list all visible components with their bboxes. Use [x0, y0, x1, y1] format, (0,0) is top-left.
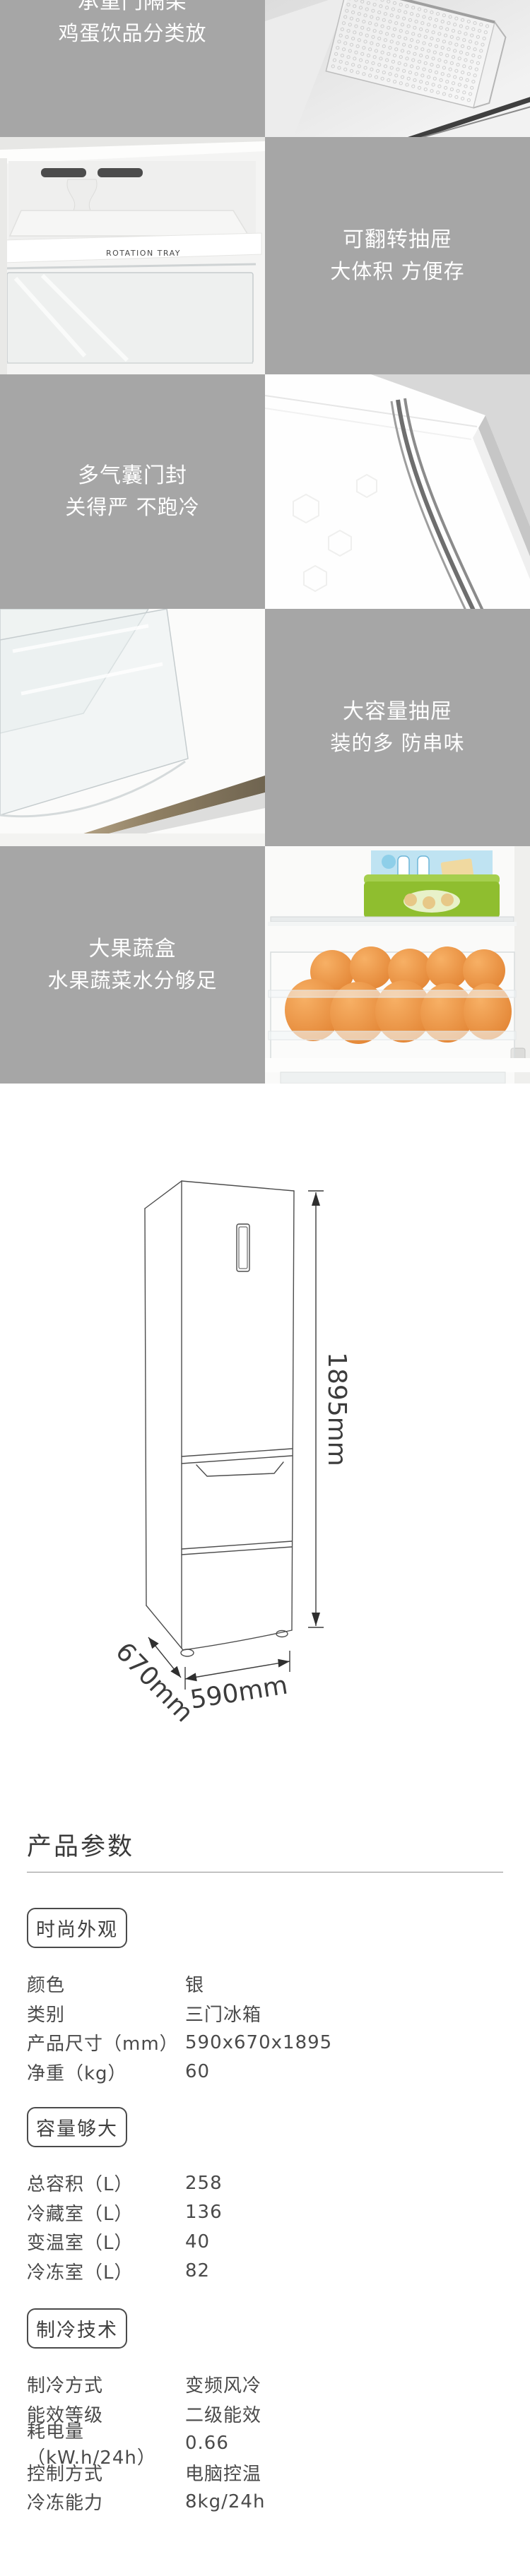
feature-text-big-drawer: 大容量抽屉 装的多 防串味 — [265, 696, 530, 759]
spec-section-appearance: 时尚外观 颜色 银 类别 三门冰箱 产品尺寸（mm） 590x670x1895 … — [27, 1908, 503, 2087]
spec-value: 136 — [185, 2202, 223, 2223]
spec-label: 控制方式 — [27, 2459, 185, 2486]
spec-value: 0.66 — [185, 2433, 229, 2454]
big-drawer-photo — [0, 609, 265, 846]
spec-row: 颜色 银 — [27, 1969, 503, 1999]
spec-label: 变温室（L） — [27, 2228, 185, 2255]
feature-text-fruit-box: 大果蔬盒 水果蔬菜水分够足 — [0, 933, 265, 997]
spec-section-capacity: 容量够大 总容积（L） 258 冷藏室（L） 136 变温室（L） 40 冷冻室… — [27, 2107, 503, 2286]
height-dimension-line — [308, 1191, 324, 1627]
feature-panel-door-shelf: 承重门隔架 鸡蛋饮品分类放 — [0, 0, 265, 137]
specs-divider — [27, 1872, 503, 1872]
door-basket-photo — [265, 0, 530, 137]
spec-rows: 总容积（L） 258 冷藏室（L） 136 变温室（L） 40 冷冻室（L） 8… — [27, 2168, 503, 2286]
feature-panel-fruit-box: 大果蔬盒 水果蔬菜水分够足 — [0, 846, 265, 1084]
spec-row: 冷藏室（L） 136 — [27, 2198, 503, 2228]
spec-row: 控制方式 电脑控温 — [27, 2458, 503, 2488]
spec-label: 总容积（L） — [27, 2170, 185, 2196]
feature-title: 大容量抽屉 — [343, 696, 452, 728]
spec-rows: 制冷方式 变频风冷 能效等级 二级能效 耗电量（kW.h/24h） 0.66 控… — [27, 2370, 503, 2517]
spec-badge-capacity: 容量够大 — [27, 2107, 127, 2147]
rotation-tray-photo: ROTATION TRAY — [0, 137, 265, 374]
feature-text-rotation-tray: 可翻转抽屉 大体积 方便存 — [265, 224, 530, 287]
spec-value: 二级能效 — [185, 2401, 261, 2427]
spec-row: 冷冻能力 8kg/24h — [27, 2487, 503, 2517]
spec-value: 258 — [185, 2173, 223, 2194]
feature-title: 可翻转抽屉 — [343, 224, 452, 256]
spec-label: 净重（kg） — [27, 2059, 185, 2085]
spec-label: 冷藏室（L） — [27, 2200, 185, 2226]
spec-value: 电脑控温 — [185, 2459, 261, 2486]
spec-value: 40 — [185, 2231, 210, 2252]
feature-subtitle: 装的多 防串味 — [330, 728, 464, 759]
spec-label: 冷冻能力 — [27, 2488, 185, 2515]
feature-subtitle: 水果蔬菜水分够足 — [47, 965, 217, 997]
spec-value: 590x670x1895 — [185, 2032, 332, 2053]
spec-label: 类别 — [27, 2000, 185, 2026]
feature-subtitle: 大体积 方便存 — [330, 256, 464, 287]
spec-value: 变频风冷 — [185, 2371, 261, 2397]
spec-value: 银 — [185, 1971, 204, 1997]
spec-label: 颜色 — [27, 1971, 185, 1997]
spec-row: 耗电量（kW.h/24h） 0.66 — [27, 2428, 503, 2458]
feature-subtitle: 鸡蛋饮品分类放 — [58, 18, 206, 49]
spec-rows: 颜色 银 类别 三门冰箱 产品尺寸（mm） 590x670x1895 净重（kg… — [27, 1969, 503, 2087]
feature-panel-door-seal: 多气囊门封 关得严 不跑冷 — [0, 374, 265, 609]
feature-text-door-shelf: 承重门隔架 鸡蛋饮品分类放 — [0, 0, 265, 49]
rotation-tray-label: ROTATION TRAY — [106, 249, 181, 258]
product-detail-page: 承重门隔架 鸡蛋饮品分类放 — [0, 0, 530, 2576]
feature-subtitle: 关得严 不跑冷 — [65, 492, 199, 523]
spec-badge-cooling: 制冷技术 — [27, 2308, 127, 2349]
spec-row: 冷冻室（L） 82 — [27, 2257, 503, 2286]
spec-value: 三门冰箱 — [185, 2000, 261, 2026]
feature-title: 多气囊门封 — [78, 460, 187, 492]
spec-section-cooling: 制冷技术 制冷方式 变频风冷 能效等级 二级能效 耗电量（kW.h/24h） 0… — [27, 2308, 503, 2517]
feature-title: 承重门隔架 — [78, 0, 187, 18]
spec-row: 制冷方式 变频风冷 — [27, 2370, 503, 2399]
spec-row: 变温室（L） 40 — [27, 2227, 503, 2257]
feature-panel-big-drawer: 大容量抽屉 装的多 防串味 — [265, 609, 530, 846]
fruit-box-photo — [265, 846, 530, 1084]
spec-label: 冷冻室（L） — [27, 2258, 185, 2284]
spec-row: 类别 三门冰箱 — [27, 1999, 503, 2029]
height-dimension-label: 1895mm — [322, 1352, 351, 1466]
dimension-diagram: 1895mm 670mm 590mm — [0, 1102, 530, 1726]
spec-row: 总容积（L） 258 — [27, 2168, 503, 2198]
spec-value: 60 — [185, 2061, 210, 2082]
spec-value: 8kg/24h — [185, 2491, 265, 2512]
width-dimension-label: 590mm — [188, 1671, 290, 1715]
specs-heading: 产品参数 — [27, 1827, 134, 1863]
feature-panel-rotation-tray: 可翻转抽屉 大体积 方便存 — [265, 137, 530, 374]
feature-title: 大果蔬盒 — [89, 933, 177, 965]
door-seal-photo — [265, 374, 530, 609]
spec-label: 产品尺寸（mm） — [27, 2029, 185, 2055]
spec-value: 82 — [185, 2260, 210, 2281]
spec-badge-appearance: 时尚外观 — [27, 1908, 127, 1948]
spec-label: 制冷方式 — [27, 2371, 185, 2397]
spec-row: 净重（kg） 60 — [27, 2058, 503, 2087]
spec-row: 产品尺寸（mm） 590x670x1895 — [27, 2028, 503, 2058]
feature-text-door-seal: 多气囊门封 关得严 不跑冷 — [0, 460, 265, 523]
